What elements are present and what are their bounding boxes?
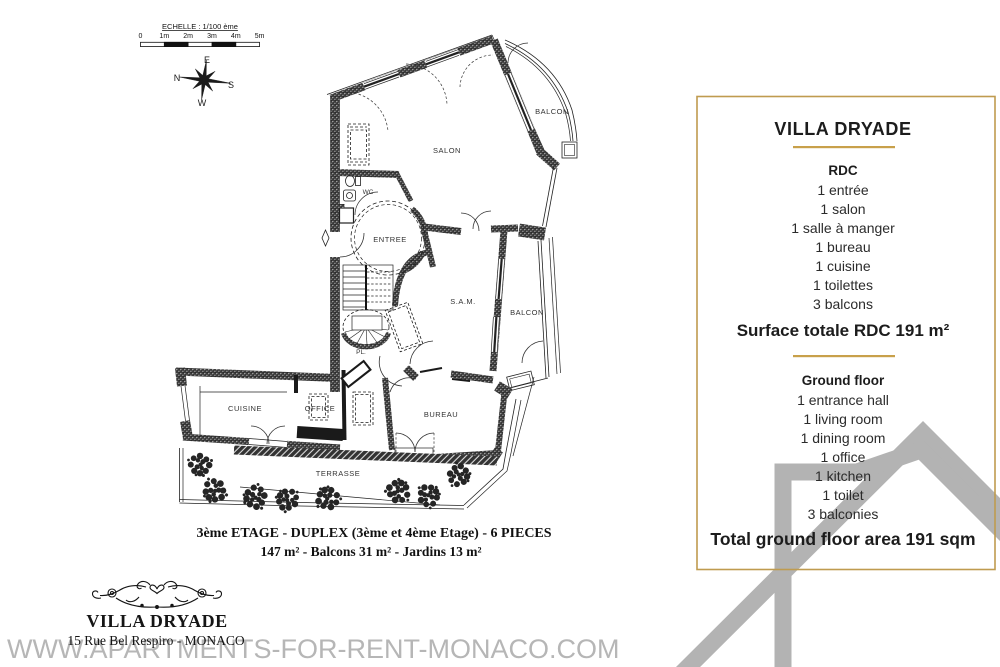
svg-text:1 office: 1 office [821,449,866,465]
svg-text:WC: WC [363,189,374,196]
svg-text:TERRASSE: TERRASSE [316,469,360,478]
svg-text:PL.: PL. [356,349,366,356]
svg-text:15 Rue Bel Respiro - MONACO: 15 Rue Bel Respiro - MONACO [67,633,245,648]
svg-text:N: N [174,73,181,83]
svg-text:1m: 1m [159,33,169,40]
svg-text:1 cuisine: 1 cuisine [815,258,870,274]
svg-text:VILLA DRYADE: VILLA DRYADE [774,119,911,139]
svg-text:Surface totale RDC 191 m²: Surface totale RDC 191 m² [737,321,950,340]
svg-text:CUISINE: CUISINE [228,404,262,413]
svg-text:1 living room: 1 living room [803,411,882,427]
svg-text:BALCON: BALCON [510,308,544,317]
svg-text:147 m² - Balcons 31 m² - Jardi: 147 m² - Balcons 31 m² - Jardins 13 m² [260,544,481,559]
svg-text:1 bureau: 1 bureau [815,239,870,255]
svg-text:1 dining room: 1 dining room [801,430,886,446]
svg-text:2m: 2m [183,33,193,40]
svg-text:1 salle à manger: 1 salle à manger [791,220,895,236]
svg-text:3m: 3m [207,33,217,40]
svg-text:E: E [204,55,210,65]
svg-text:4m: 4m [231,33,241,40]
svg-text:3ème ETAGE - DUPLEX (3ème et 4: 3ème ETAGE - DUPLEX (3ème et 4ème Etage)… [196,526,551,541]
svg-text:1 kitchen: 1 kitchen [815,468,871,484]
svg-text:ENTREE: ENTREE [373,235,406,244]
svg-text:SALON: SALON [433,146,461,155]
svg-text:3 balcons: 3 balcons [813,296,873,312]
svg-text:1 entrée: 1 entrée [817,182,869,198]
svg-text:1 toilettes: 1 toilettes [813,277,873,293]
svg-text:1 toilet: 1 toilet [822,487,863,503]
svg-text:BALCON: BALCON [535,107,569,116]
svg-text:ECHELLE : 1/100 ème: ECHELLE : 1/100 ème [162,22,238,31]
svg-text:VILLA DRYADE: VILLA DRYADE [86,611,227,631]
svg-text:W: W [198,98,207,108]
svg-text:Ground floor: Ground floor [802,373,885,388]
svg-text:Total ground floor area 191 sq: Total ground floor area 191 sqm [710,529,975,549]
svg-text:0: 0 [139,33,143,40]
svg-text:1 entrance hall: 1 entrance hall [797,392,889,408]
svg-text:BUREAU: BUREAU [424,410,458,419]
svg-text:1 salon: 1 salon [820,201,865,217]
svg-text:3 balconies: 3 balconies [808,506,879,522]
svg-text:RDC: RDC [828,163,857,178]
svg-text:S: S [228,80,234,90]
svg-text:S.A.M.: S.A.M. [450,297,476,306]
svg-text:OFFICE: OFFICE [305,404,336,413]
svg-text:5m: 5m [255,33,265,40]
